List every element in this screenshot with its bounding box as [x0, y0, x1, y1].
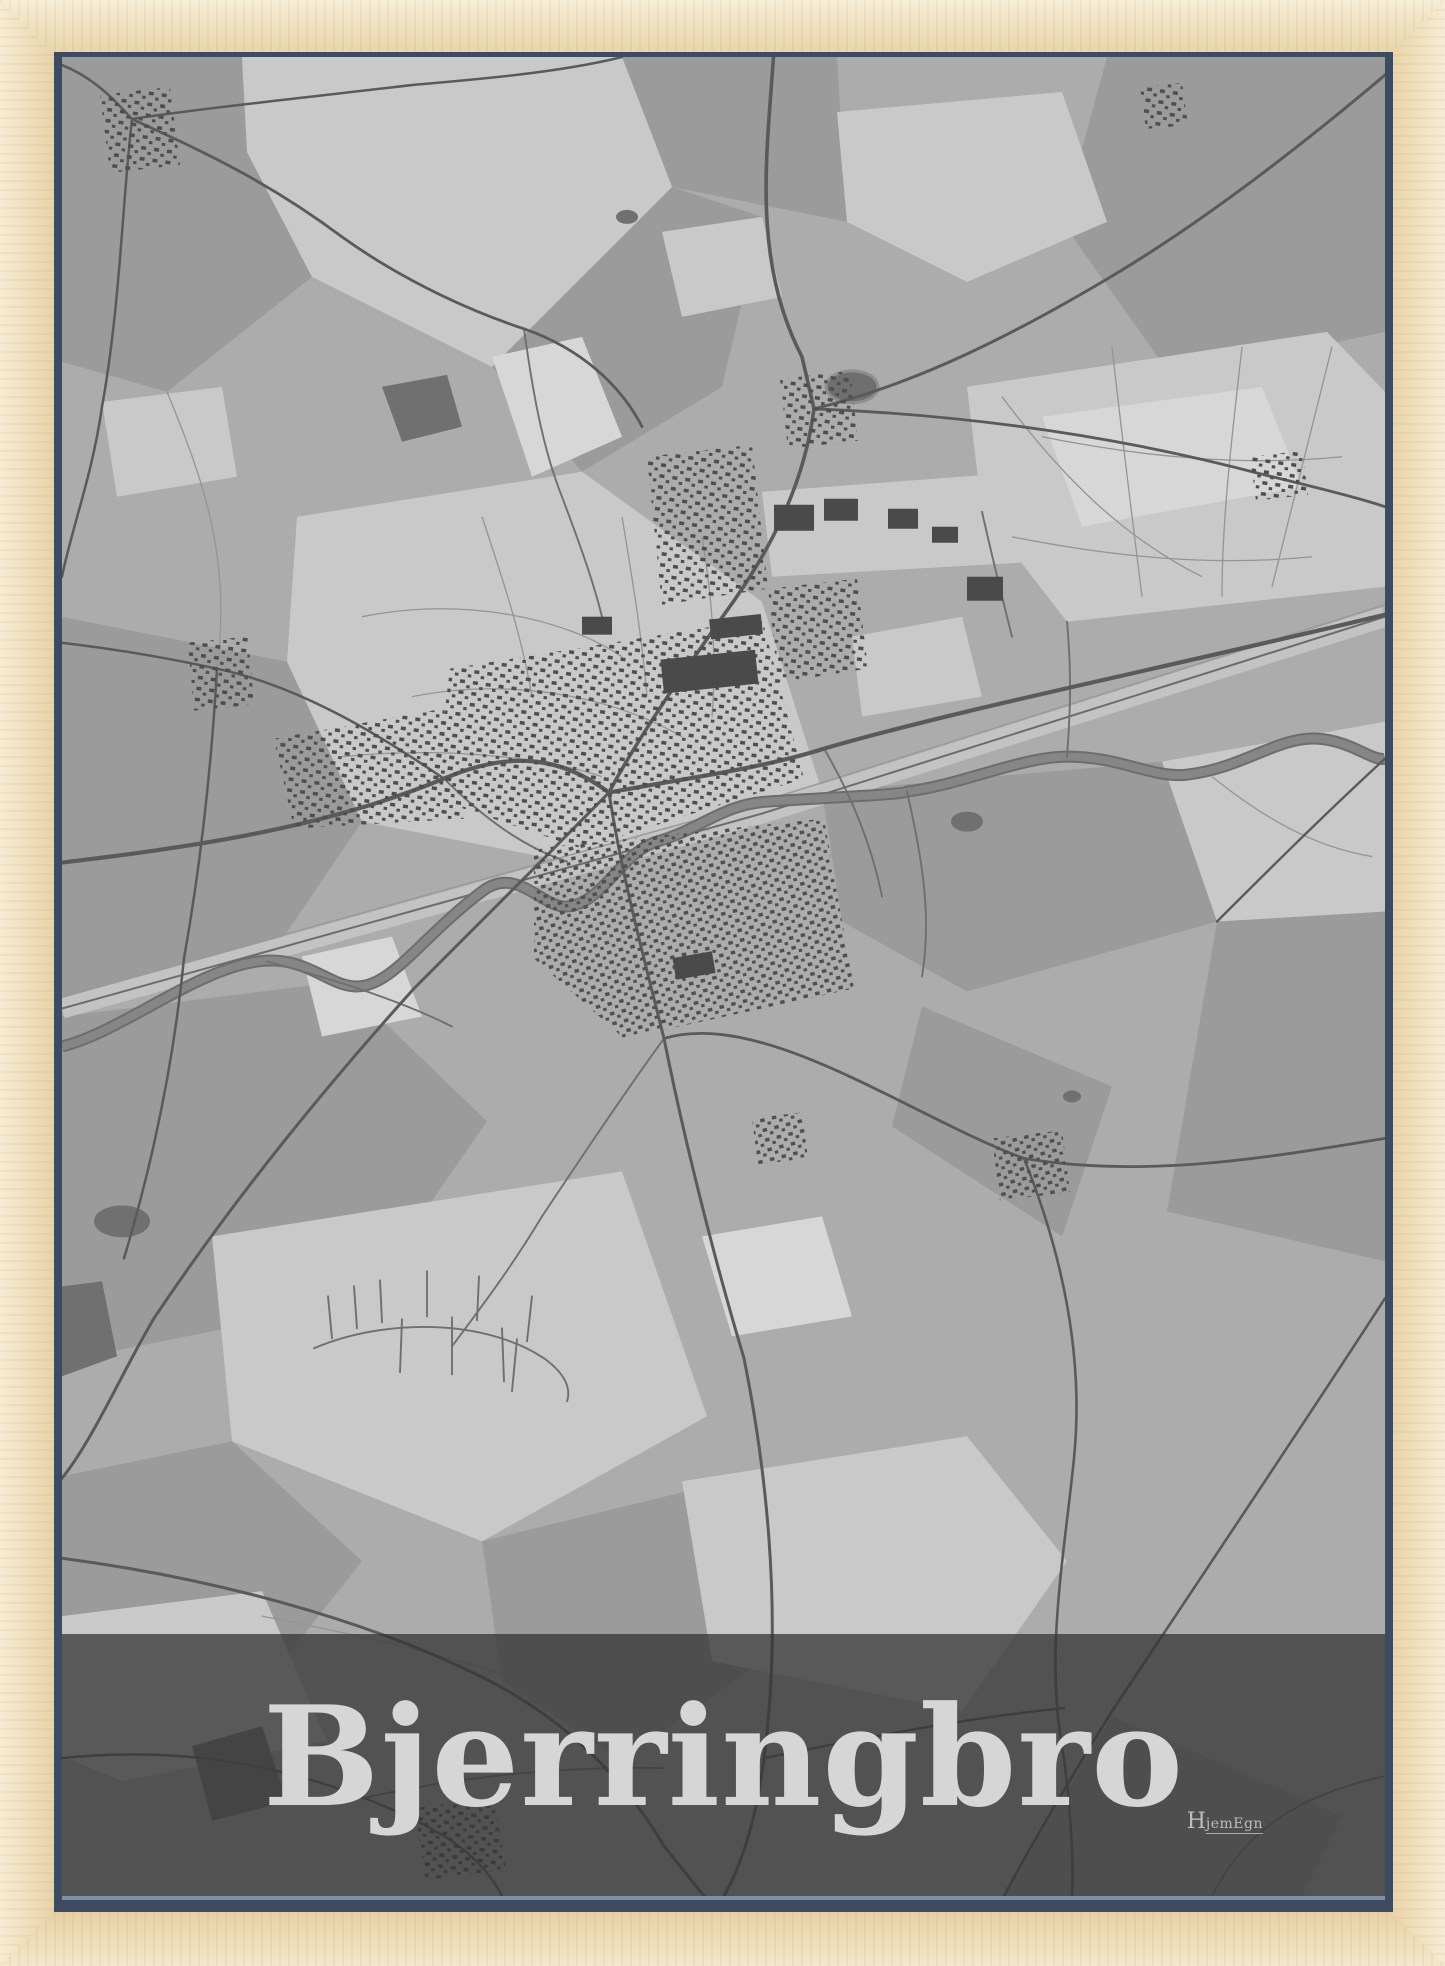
- frame-bottom: [0, 1910, 1445, 1966]
- title-band: Bjerringbro: [62, 1634, 1385, 1896]
- frame-left: [0, 0, 56, 1966]
- brand-logo: HjemEgn: [1187, 1809, 1263, 1834]
- frame-inner-highlight: [62, 1896, 1385, 1900]
- frame-right: [1389, 0, 1445, 1966]
- poster-title: Bjerringbro: [263, 1688, 1184, 1842]
- framed-map-poster: Bjerringbro HjemEgn: [0, 0, 1445, 1966]
- frame-top: [0, 0, 1445, 56]
- brand-initial: H: [1187, 1809, 1206, 1834]
- brand-rest: jemEgn: [1206, 1816, 1263, 1834]
- map-svg: [62, 57, 1385, 1896]
- poster: Bjerringbro HjemEgn: [62, 57, 1385, 1896]
